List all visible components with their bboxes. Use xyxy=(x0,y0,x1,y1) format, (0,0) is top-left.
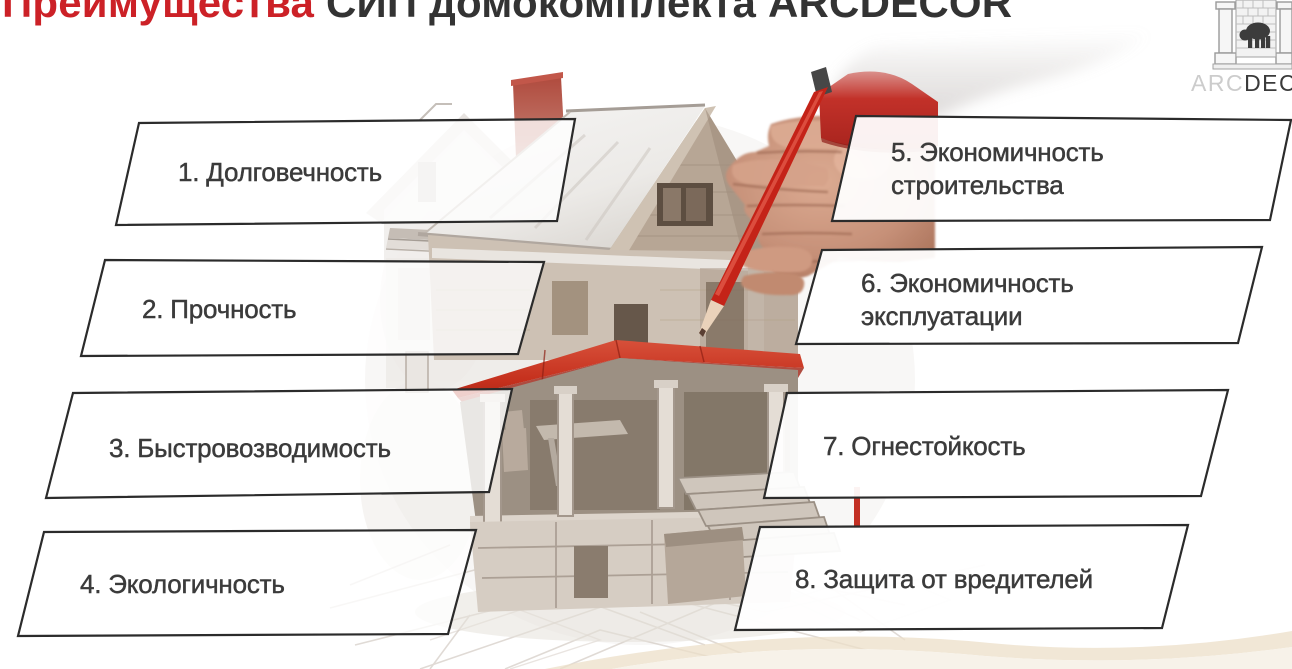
svg-text:2. Прочность: 2. Прочность xyxy=(142,294,296,324)
svg-text:ARCDECOR: ARCDECOR xyxy=(1191,70,1292,96)
svg-text:Преимущества СИП домокомплекта: Преимущества СИП домокомплекта ARCDECOR xyxy=(2,0,1012,26)
svg-text:8. Защита от вредителей: 8. Защита от вредителей xyxy=(795,564,1093,594)
svg-text:строительства: строительства xyxy=(891,170,1064,200)
svg-text:эксплуатации: эксплуатации xyxy=(861,301,1022,331)
svg-text:3. Быстровозводимость: 3. Быстровозводимость xyxy=(109,433,391,463)
svg-text:7. Огнестойкость: 7. Огнестойкость xyxy=(823,431,1025,461)
svg-text:6. Экономичность: 6. Экономичность xyxy=(861,268,1074,298)
svg-text:4. Экологичность: 4. Экологичность xyxy=(80,569,285,599)
svg-text:1. Долговечность: 1. Долговечность xyxy=(178,157,382,187)
svg-text:5. Экономичность: 5. Экономичность xyxy=(891,137,1104,167)
